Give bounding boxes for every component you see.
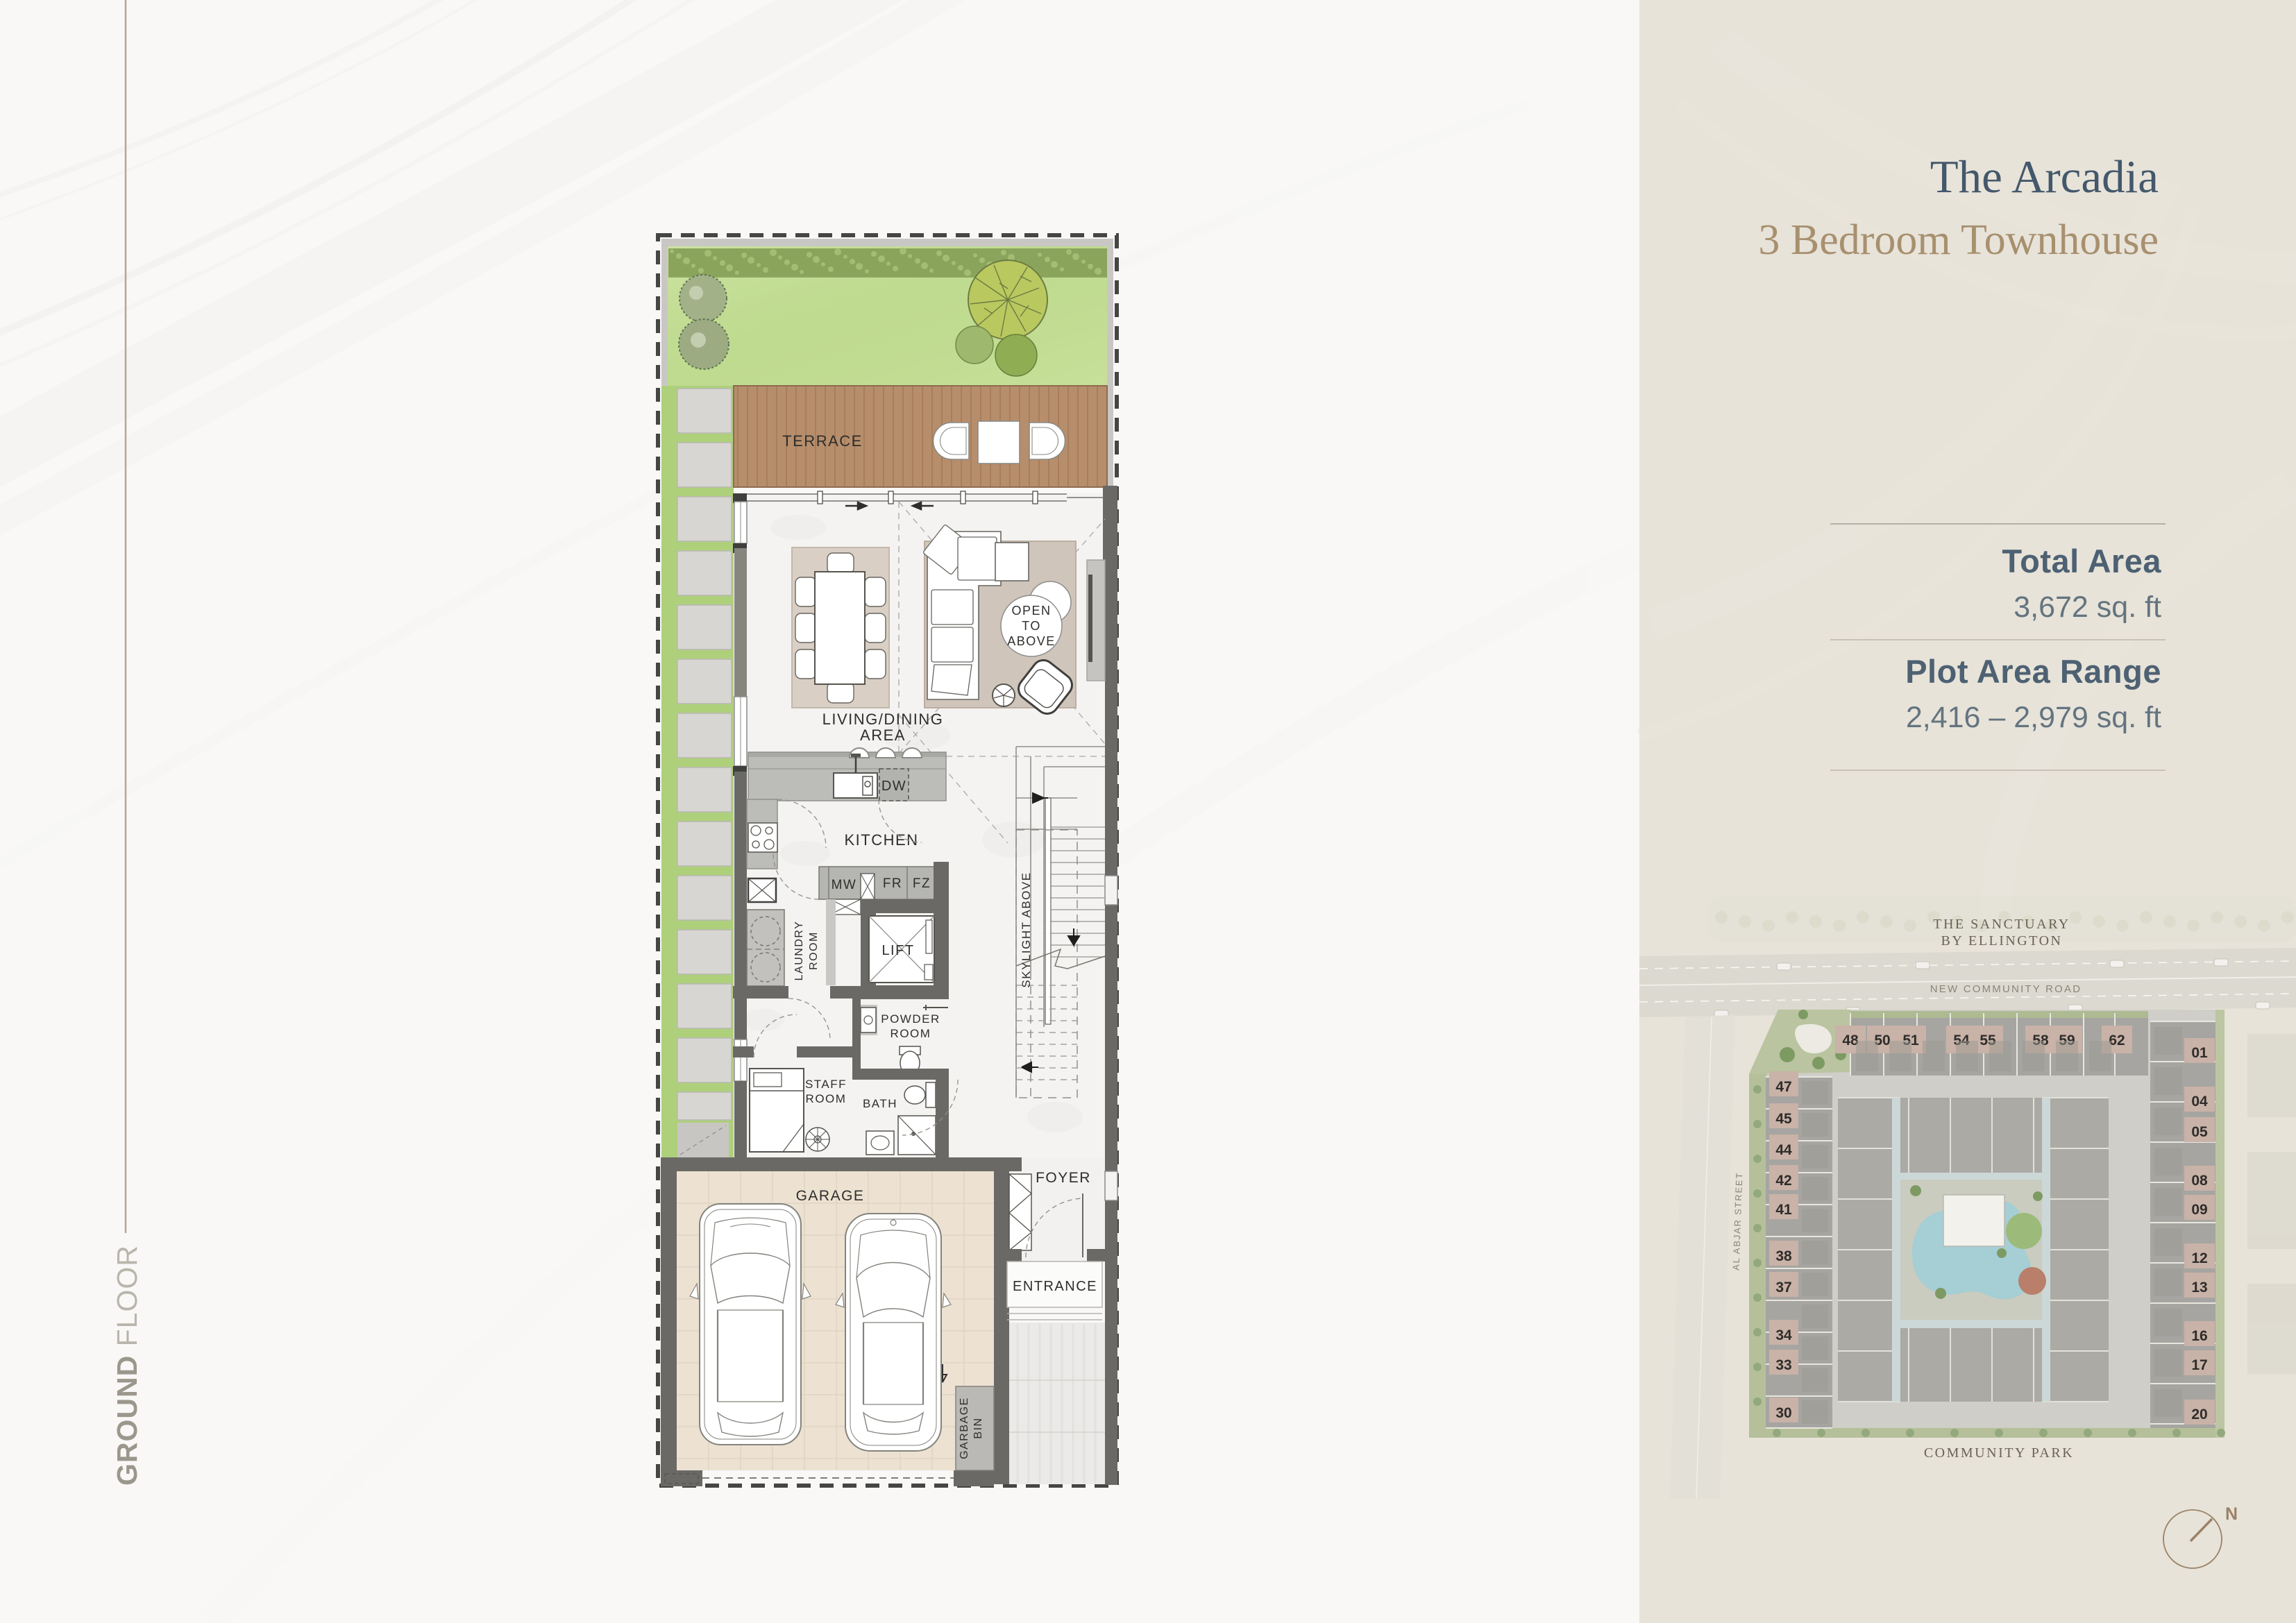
svg-text:DW: DW: [881, 779, 906, 794]
svg-text:17: 17: [2191, 1357, 2207, 1373]
svg-text:47: 47: [1775, 1079, 1791, 1095]
svg-text:COMMUNITY PARK: COMMUNITY PARK: [1924, 1445, 2074, 1461]
svg-text:3 Bedroom Townhouse: 3 Bedroom Townhouse: [1758, 216, 2159, 264]
svg-text:BIN: BIN: [972, 1417, 984, 1438]
svg-text:20: 20: [2191, 1407, 2207, 1422]
svg-text:34: 34: [1775, 1327, 1792, 1343]
svg-text:ROOM: ROOM: [890, 1027, 931, 1040]
svg-text:09: 09: [2191, 1202, 2207, 1218]
svg-text:44: 44: [1775, 1142, 1792, 1158]
svg-text:LIFT: LIFT: [881, 943, 914, 958]
svg-text:12: 12: [2191, 1250, 2207, 1266]
svg-text:NEW COMMUNITY ROAD: NEW COMMUNITY ROAD: [1930, 983, 2082, 995]
svg-text:33: 33: [1775, 1357, 1791, 1373]
svg-text:37: 37: [1775, 1280, 1791, 1295]
svg-text:FZ: FZ: [913, 876, 931, 891]
svg-text:13: 13: [2191, 1280, 2207, 1295]
svg-text:2,416 – 2,979 sq. ft: 2,416 – 2,979 sq. ft: [1906, 701, 2161, 734]
svg-text:08: 08: [2191, 1173, 2208, 1189]
svg-text:SKYLIGHT ABOVE: SKYLIGHT ABOVE: [1020, 872, 1033, 987]
svg-text:16: 16: [2191, 1328, 2207, 1344]
svg-text:Plot Area Range: Plot Area Range: [1905, 653, 2161, 690]
svg-text:45: 45: [1775, 1111, 1792, 1127]
svg-text:BY ELLINGTON: BY ELLINGTON: [1941, 933, 2063, 949]
svg-text:ABOVE: ABOVE: [1007, 634, 1056, 648]
svg-text:30: 30: [1775, 1405, 1791, 1421]
svg-text:Total Area: Total Area: [2002, 543, 2161, 579]
svg-text:N: N: [2225, 1504, 2238, 1524]
svg-text:FOYER: FOYER: [1036, 1170, 1091, 1186]
svg-text:STAFF: STAFF: [805, 1078, 847, 1091]
svg-text:41: 41: [1775, 1202, 1792, 1218]
svg-text:TO: TO: [1022, 619, 1041, 633]
svg-text:FR: FR: [883, 876, 902, 891]
svg-text:01: 01: [2191, 1045, 2208, 1061]
svg-text:TERRACE: TERRACE: [782, 432, 863, 450]
svg-text:POWDER: POWDER: [881, 1012, 940, 1026]
svg-text:GARAGE: GARAGE: [796, 1188, 865, 1204]
svg-text:BATH: BATH: [863, 1097, 897, 1110]
svg-text:42: 42: [1775, 1173, 1791, 1189]
svg-text:THE SANCTUARY: THE SANCTUARY: [1933, 917, 2070, 932]
svg-text:ROOM: ROOM: [808, 931, 820, 970]
svg-text:LIVING/DINING: LIVING/DINING: [822, 711, 944, 728]
svg-text:GROUND FLOOR: GROUND FLOOR: [111, 1245, 143, 1486]
svg-text:ENTRANCE: ENTRANCE: [1013, 1279, 1097, 1294]
svg-text:MW: MW: [832, 878, 857, 892]
svg-text:The Arcadia: The Arcadia: [1930, 151, 2159, 203]
svg-text:ROOM: ROOM: [806, 1092, 847, 1105]
svg-text:3,672 sq. ft: 3,672 sq. ft: [2014, 590, 2161, 624]
svg-text:38: 38: [1775, 1248, 1792, 1264]
svg-text:AREA: AREA: [860, 726, 906, 744]
svg-text:05: 05: [2191, 1124, 2208, 1140]
svg-text:04: 04: [2191, 1094, 2208, 1110]
svg-text:GARBAGE: GARBAGE: [959, 1397, 970, 1459]
svg-text:LAUNDRY: LAUNDRY: [793, 921, 805, 981]
svg-text:OPEN: OPEN: [1011, 604, 1051, 618]
